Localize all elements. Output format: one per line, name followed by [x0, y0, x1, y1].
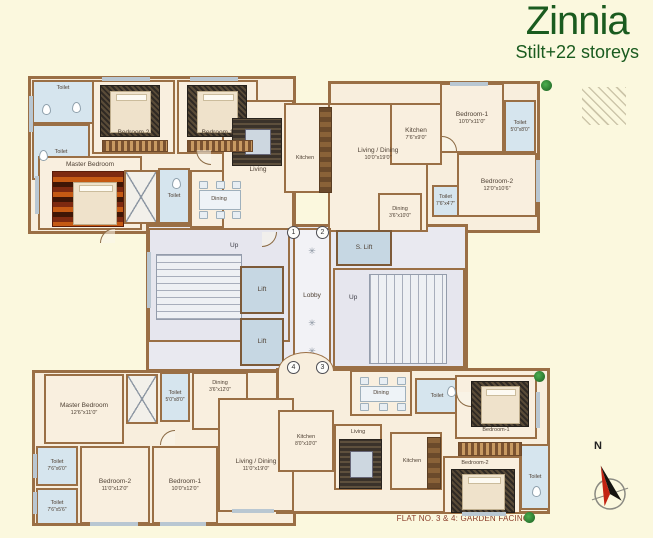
stairs-icon: [156, 254, 242, 320]
room-label: Bedroom 1: [202, 129, 234, 137]
room-toilet: Toilet: [520, 444, 550, 510]
lobby-label: Lobby: [295, 292, 329, 300]
window: [90, 522, 138, 526]
flat-number-badge: 4: [287, 361, 300, 374]
compass-needle-icon: [578, 436, 642, 532]
toilet-icon: [72, 102, 81, 113]
floor-plan: Zinnia Stilt+22 storeys Toilet Toilet Be…: [0, 0, 653, 538]
room-toilet: Toilet7'6"x6'0": [36, 446, 78, 486]
project-name: Zinnia: [515, 0, 639, 42]
flat-number-badge: 3: [316, 361, 329, 374]
room-label: Dining3'6"x10'0": [389, 206, 411, 219]
room-kitchen: Kitchen: [284, 103, 332, 193]
room-label: Dining: [373, 390, 389, 397]
stairs-up-label: Up: [230, 242, 238, 249]
room-label: Toilet7'6"x5'6": [47, 500, 66, 513]
room-label: Master Bedroom: [66, 161, 114, 169]
window: [536, 160, 540, 202]
window: [33, 454, 37, 478]
window: [147, 252, 151, 308]
compass-north-label: N: [594, 440, 602, 452]
room-label: Bedroom-212'0"x10'6": [481, 178, 513, 193]
window: [462, 512, 506, 516]
stairs-icon: [369, 274, 447, 364]
room-toilet: Toilet5'0"x8'0": [160, 372, 190, 422]
room-label: Kitchen7'6"x9'0": [405, 127, 427, 142]
room-label: Living / Dining10'0"x19'0": [330, 147, 426, 162]
room-bedroom-2: Bedroom 2: [92, 80, 175, 154]
room-label: Kitchen: [280, 155, 330, 162]
wardrobe-icon: [102, 140, 168, 152]
toilet-icon: [447, 386, 456, 397]
service-lift-label: S. Lift: [356, 244, 373, 252]
toilet-icon: [39, 150, 48, 161]
terrace-hatch-icon: [582, 87, 626, 125]
room-label: Toilet: [57, 85, 70, 92]
lift: Lift: [240, 318, 284, 366]
flat-number-badge: 1: [287, 226, 300, 239]
room-dining: Dining3'6"x10'0": [378, 193, 422, 232]
room-label: Toilet5'0"x8'0": [510, 120, 529, 133]
room-label: Toilet: [431, 393, 444, 400]
plant-icon: [534, 371, 545, 382]
room-bedroom-2: Bedroom-211'0"x12'0": [80, 446, 150, 524]
stairwell-right: Up: [333, 268, 465, 368]
bed-icon: [52, 171, 124, 227]
plant-icon: [524, 512, 535, 523]
toilet-icon: [172, 178, 181, 189]
room-label: Toilet5'0"x8'0": [165, 390, 184, 403]
room-label: Kitchen8'0"x10'0": [295, 434, 317, 447]
room-label: Toilet: [55, 149, 68, 156]
room-label: Toilet7'6"x4'7": [436, 194, 455, 207]
room-bedroom-1: Bedroom-1: [455, 375, 537, 439]
shaft-cross-icon: [126, 374, 158, 424]
service-lift: S. Lift: [336, 230, 392, 266]
project-subtitle: Stilt+22 storeys: [515, 42, 639, 63]
floor-motif-icon: ✳: [295, 318, 329, 329]
window: [102, 77, 150, 81]
room-label: Bedroom 2: [118, 129, 150, 137]
compass-icon: N: [578, 436, 642, 532]
room-toilet: Toilet: [158, 168, 190, 224]
bed-icon: [471, 381, 529, 427]
wardrobe-icon: [458, 442, 522, 456]
bed-icon: [451, 469, 515, 513]
room-label: Bedroom-110'0"x11'0": [456, 111, 488, 126]
room-bedroom-1: Bedroom-110'0"x12'0": [152, 446, 218, 524]
window: [33, 492, 37, 514]
room-toilet: Toilet7'6"x4'7": [432, 185, 459, 217]
room-toilet: Toilet7'6"x5'6": [36, 488, 78, 525]
room-label: Toilet: [168, 193, 181, 200]
lift-label: Lift: [258, 286, 267, 294]
lift: Lift: [240, 266, 284, 314]
room-label: Dining: [211, 196, 227, 203]
toilet-icon: [42, 104, 51, 115]
lift-label: Lift: [258, 338, 267, 346]
flat-number-badge: 2: [316, 226, 329, 239]
room-living: Living: [334, 424, 382, 490]
sofa-unit-icon: [339, 439, 382, 489]
room-label: Toilet: [529, 474, 542, 481]
room-toilet: Toilet5'0"x8'0": [504, 100, 536, 153]
project-title-block: Zinnia Stilt+22 storeys: [515, 0, 639, 63]
room-label: Bedroom-1: [457, 427, 535, 434]
window: [232, 509, 274, 513]
room-toilet: Toilet: [415, 378, 459, 414]
room-toilet: Toilet: [32, 80, 94, 124]
room-master-bedroom: Master Bedroom12'6"x11'0": [44, 374, 124, 444]
room-bedroom-2: Bedroom-2: [443, 456, 521, 514]
window: [536, 392, 540, 428]
room-label: Living / Dining11'0"x19'0": [220, 458, 292, 473]
lobby: ✳ Lobby ✳ ✳: [293, 228, 331, 368]
room-bedroom-2: Bedroom-212'0"x10'6": [457, 153, 537, 217]
room-label: Bedroom-110'0"x12'0": [169, 478, 201, 493]
room-label: Dining3'6"x12'0": [194, 380, 246, 393]
room-label: Toilet7'6"x6'0": [47, 459, 66, 472]
room-dining: Dining: [350, 370, 412, 416]
stairs-up-label: Up: [349, 294, 357, 301]
shaft-cross-icon: [124, 170, 158, 224]
room-label: Bedroom-211'0"x12'0": [99, 478, 131, 493]
room-label: Master Bedroom12'6"x11'0": [60, 402, 108, 417]
room-label: Living: [224, 166, 292, 174]
room-bedroom-1: Bedroom 1: [177, 80, 258, 154]
room-label: Living: [336, 429, 380, 436]
window: [35, 176, 39, 214]
toilet-icon: [532, 486, 541, 497]
window: [160, 522, 206, 526]
plant-icon: [541, 80, 552, 91]
room-label: Bedroom-2: [431, 460, 519, 467]
window: [190, 77, 238, 81]
floor-motif-icon: ✳: [295, 246, 329, 257]
window: [450, 82, 488, 86]
window: [29, 96, 33, 132]
